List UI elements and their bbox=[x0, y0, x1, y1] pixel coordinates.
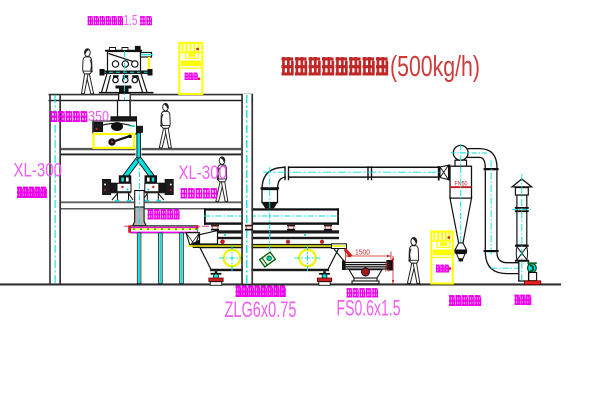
svg-text:XL-300: XL-300 bbox=[14, 160, 63, 182]
svg-text:1500: 1500 bbox=[355, 250, 370, 257]
svg-text:(500kg/h): (500kg/h) bbox=[390, 51, 480, 83]
svg-text:FS0.6x1.5: FS0.6x1.5 bbox=[337, 296, 401, 321]
svg-text:ZLG6x0.75: ZLG6x0.75 bbox=[225, 297, 297, 322]
svg-text:350: 350 bbox=[386, 261, 392, 272]
svg-text:XL-300: XL-300 bbox=[179, 162, 228, 184]
svg-text:FN50: FN50 bbox=[455, 181, 469, 187]
svg-text:1.5: 1.5 bbox=[124, 13, 138, 29]
svg-text:350: 350 bbox=[88, 108, 109, 125]
